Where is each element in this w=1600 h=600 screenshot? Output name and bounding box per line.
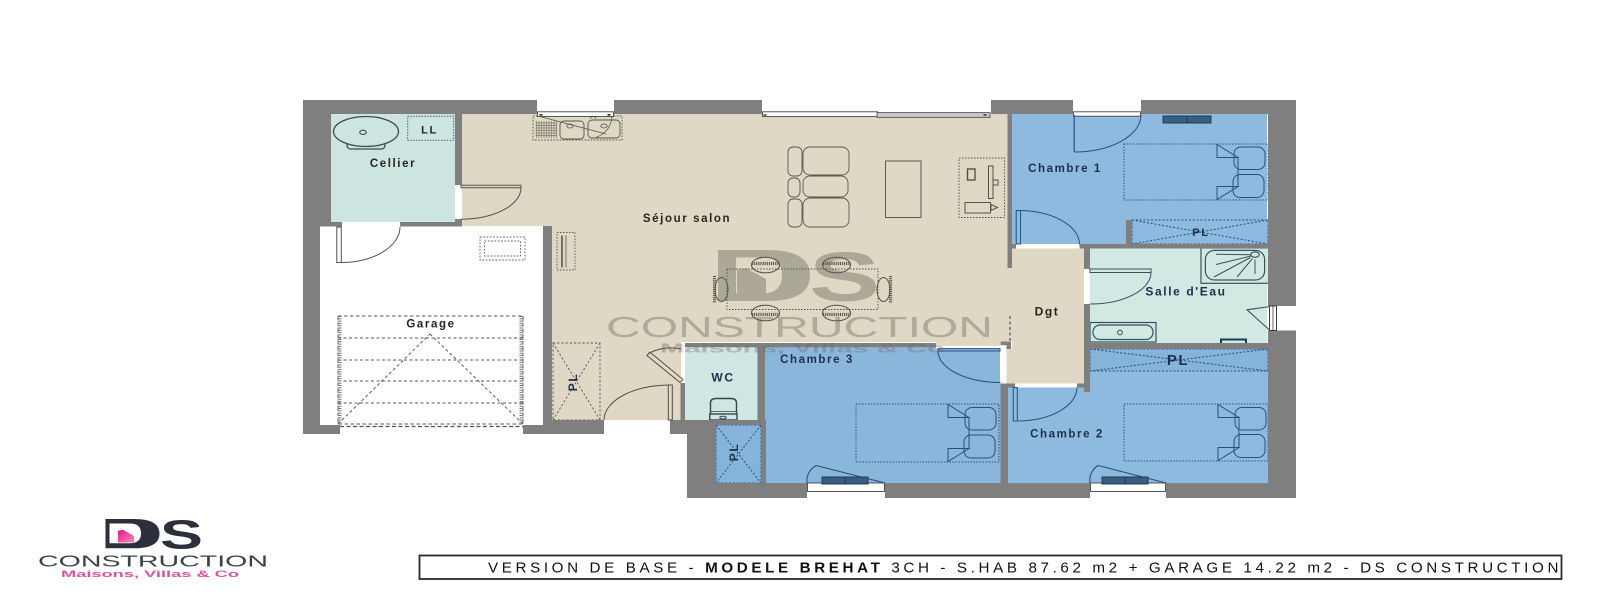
svg-text:LL: LL bbox=[421, 125, 438, 137]
svg-text:S: S bbox=[809, 238, 880, 316]
svg-text:Chambre 2: Chambre 2 bbox=[1030, 429, 1104, 441]
svg-text:Salle d'Eau: Salle d'Eau bbox=[1145, 285, 1226, 299]
svg-text:Cellier: Cellier bbox=[370, 158, 416, 170]
svg-text:Garage: Garage bbox=[406, 319, 455, 331]
svg-text:Maisons, Villas & Co: Maisons, Villas & Co bbox=[61, 569, 240, 579]
svg-text:PL: PL bbox=[1192, 227, 1209, 239]
svg-text:VERSION DE BASE - MODELE BREHA: VERSION DE BASE - MODELE BREHAT 3CH - S.… bbox=[488, 560, 1562, 577]
svg-text:PL: PL bbox=[727, 443, 741, 462]
svg-text:Chambre 1: Chambre 1 bbox=[1028, 163, 1102, 175]
svg-text:S: S bbox=[160, 511, 203, 557]
svg-text:PL: PL bbox=[566, 373, 580, 392]
svg-text:Séjour salon: Séjour salon bbox=[643, 213, 731, 225]
svg-text:Chambre 3: Chambre 3 bbox=[780, 354, 854, 366]
svg-text:PL: PL bbox=[1167, 352, 1189, 369]
svg-text:WC: WC bbox=[711, 371, 734, 385]
svg-text:Dgt: Dgt bbox=[1035, 305, 1060, 319]
svg-text:Maisons, Villas & Co: Maisons, Villas & Co bbox=[660, 342, 946, 356]
svg-text:CONSTRUCTION: CONSTRUCTION bbox=[606, 312, 993, 344]
